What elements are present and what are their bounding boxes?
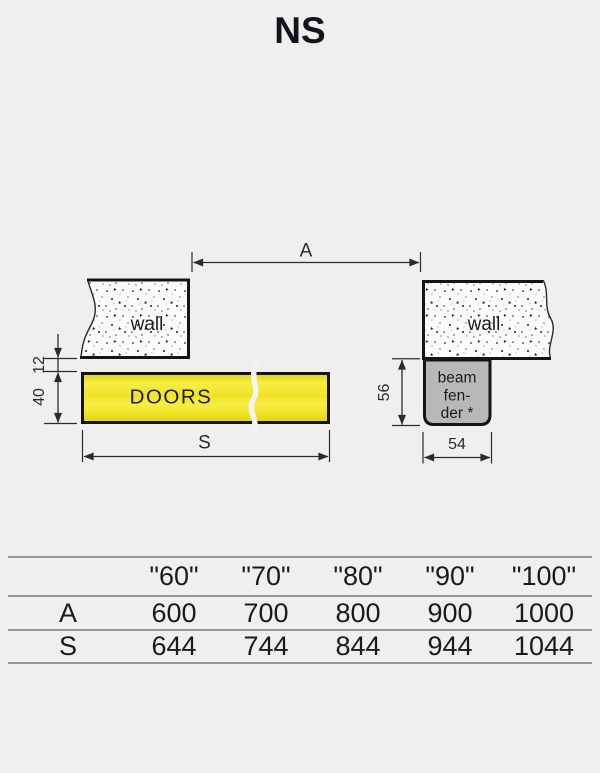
table-cell-a-80: 800 [312, 600, 404, 627]
beam-fender: beam fen- der * [425, 360, 491, 425]
col-header-100: "100" [496, 563, 592, 590]
size-table: "60" "70" "80" "90" "100" A 600 700 800 … [8, 556, 592, 664]
col-header-70: "70" [220, 563, 312, 590]
dimension-a-label: A [300, 241, 313, 262]
row-label-a: A [8, 600, 128, 627]
doors-label: DOORS [130, 386, 213, 409]
dimension-a: A [192, 241, 421, 273]
dimension-s: S [83, 430, 330, 462]
beam-fender-label-line1: beam [438, 370, 477, 387]
wall-left-label: wall [130, 314, 164, 335]
dimension-56-label: 56 [376, 384, 393, 402]
table-cell-s-90: 944 [404, 633, 496, 660]
dimension-s-label: S [198, 433, 211, 454]
dimension-40-label: 40 [31, 388, 48, 406]
row-label-s: S [8, 633, 128, 660]
doors-break-line [251, 365, 256, 430]
dimension-54-label: 54 [448, 436, 466, 453]
dimension-54: 54 [423, 432, 492, 464]
doors-bar: DOORS [83, 365, 329, 430]
wall-left: wall [80, 280, 190, 358]
dimension-12-40: 12 40 [31, 334, 77, 424]
table-cell-a-100: 1000 [496, 600, 592, 627]
table-cell-s-80: 844 [312, 633, 404, 660]
table-row-s: S 644 744 844 944 1044 [8, 631, 592, 664]
table-cell-a-60: 600 [128, 600, 220, 627]
wall-right-label: wall [467, 314, 501, 335]
wall-right: wall [422, 280, 553, 359]
dimension-56: 56 [376, 359, 420, 426]
dimension-diagram: A wall wall DOORS [0, 0, 600, 520]
table-cell-a-90: 900 [404, 600, 496, 627]
dimension-12-label: 12 [31, 356, 48, 374]
table-cell-s-100: 1044 [496, 633, 592, 660]
beam-fender-label-line3: der * [441, 405, 474, 422]
page: NS [0, 0, 600, 773]
table-cell-a-70: 700 [220, 600, 312, 627]
table-cell-s-70: 744 [220, 633, 312, 660]
table-row-a: A 600 700 800 900 1000 [8, 597, 592, 631]
table-header-row: "60" "70" "80" "90" "100" [8, 558, 592, 597]
table-cell-s-60: 644 [128, 633, 220, 660]
col-header-90: "90" [404, 563, 496, 590]
col-header-80: "80" [312, 563, 404, 590]
beam-fender-label-line2: fen- [444, 388, 471, 405]
col-header-60: "60" [128, 563, 220, 590]
